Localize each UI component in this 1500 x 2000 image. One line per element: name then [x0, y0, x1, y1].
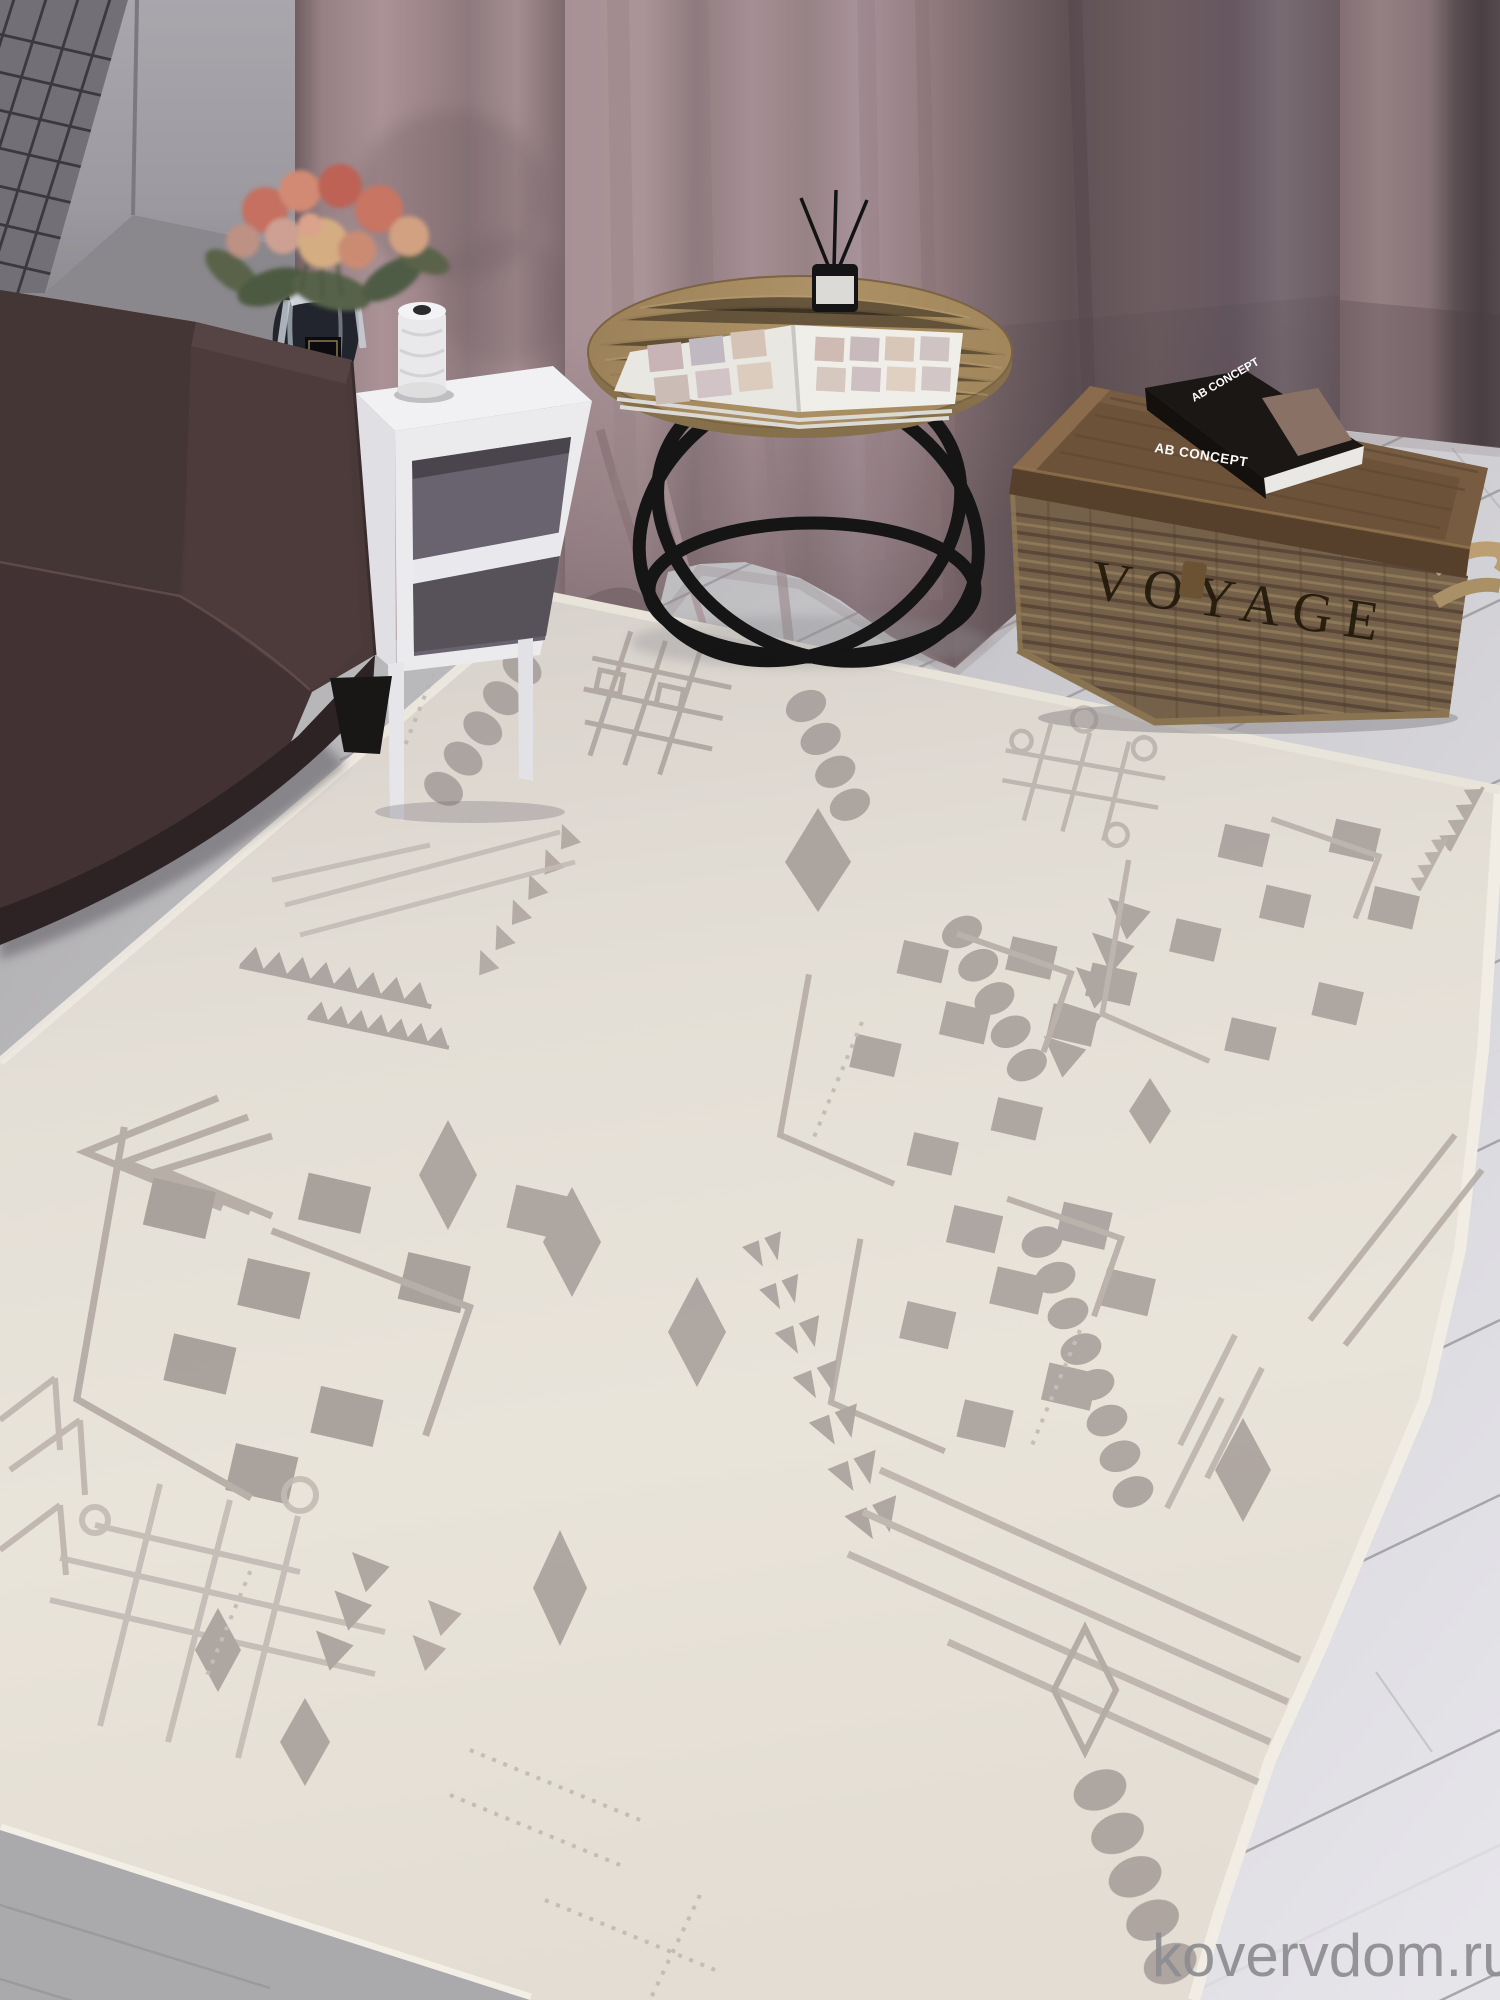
- svg-text:kovervdom.ru: kovervdom.ru: [1152, 1922, 1500, 1989]
